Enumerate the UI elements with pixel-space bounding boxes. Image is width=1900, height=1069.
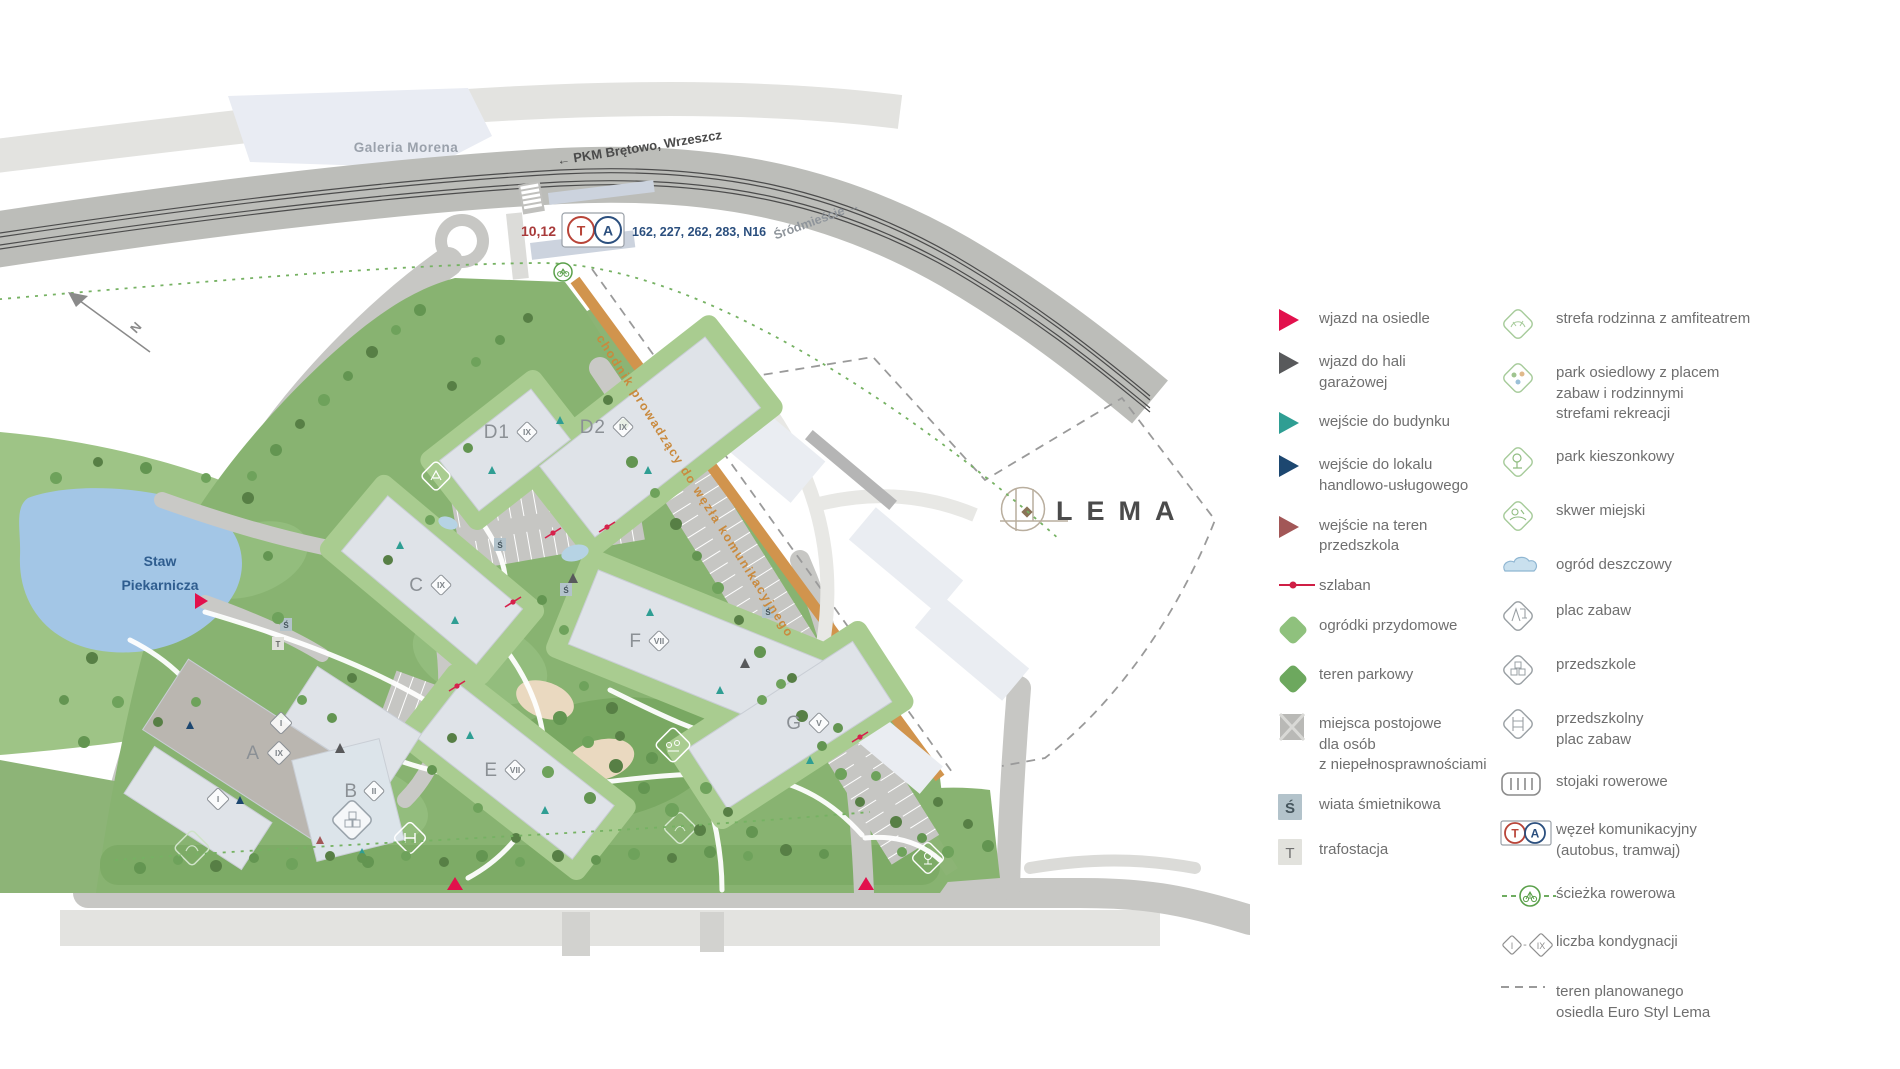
legend-label: ogród deszczowy <box>1556 552 1672 576</box>
legend-item: strefa rodzinna z amfiteatrem <box>1500 306 1840 341</box>
legend-label: strefa rodzinna z amfiteatrem <box>1556 306 1750 330</box>
city-square-icon <box>1500 498 1556 533</box>
floors-count-icon: I-IX <box>1500 929 1556 960</box>
legend-label: wejście do lokalu handlowo-usługowego <box>1319 452 1468 496</box>
svg-text:Ś: Ś <box>497 541 503 550</box>
bike-path-node-icon <box>554 263 572 281</box>
waste-shelter-icon: Ś <box>1277 792 1319 821</box>
legend-item: T trafostacja <box>1277 837 1507 866</box>
lema-logo: LEMA <box>1000 488 1189 532</box>
legend-item: wejście do lokalu handlowo-usługowego <box>1277 452 1507 496</box>
legend-item: wejście do budynku <box>1277 409 1507 436</box>
legend-label: stojaki rowerowe <box>1556 769 1668 793</box>
building-label-F: F <box>629 631 642 652</box>
legend-label: wejście na teren przedszkola <box>1319 513 1427 557</box>
bike-path-icon <box>1500 881 1556 910</box>
legend-item: park osiedlowy z placem zabaw i rodzinny… <box>1500 360 1840 425</box>
legend-label: węzeł komunikacyjny (autobus, tramwaj) <box>1556 817 1697 861</box>
legend-item: przedszkole <box>1500 652 1840 687</box>
legend-label: trafostacja <box>1319 837 1388 861</box>
legend-item: szlaban <box>1277 573 1507 597</box>
svg-text:-: - <box>1523 939 1527 951</box>
svg-text:Ś: Ś <box>563 586 569 595</box>
estate-park-icon <box>1500 360 1556 395</box>
kindergarten-playground-icon <box>1500 706 1556 741</box>
tram-lines-label: 10,12 <box>521 223 556 239</box>
site-plan-page: LEMA <box>0 0 1900 1069</box>
building-label-B: B <box>344 781 358 802</box>
building-label-D1: D1 <box>484 422 510 443</box>
building-label-E: E <box>484 760 498 781</box>
building-label-C: C <box>409 575 424 596</box>
svg-text:T: T <box>276 640 281 649</box>
building-label-D2: D2 <box>580 417 606 438</box>
playground-icon <box>1500 598 1556 633</box>
building-label-A: A <box>246 743 260 764</box>
barrier-icon <box>1277 573 1319 596</box>
legend-item: ścieżka rowerowa <box>1500 881 1840 910</box>
svg-text:I: I <box>280 718 282 728</box>
svg-text:IX: IX <box>619 422 627 432</box>
building-label-G: G <box>786 713 802 734</box>
svg-text:Ś: Ś <box>283 621 289 630</box>
legend-label: przedszkole <box>1556 652 1636 676</box>
svg-text:I: I <box>217 794 219 804</box>
bike-racks-icon <box>1500 769 1556 798</box>
legend-label: teren planowanego osiedla Euro Styl Lema <box>1556 979 1710 1023</box>
entry-garage-arrow-icon <box>1277 349 1319 376</box>
legend-label: miejsca postojowe dla osób z niepełnospr… <box>1319 711 1487 776</box>
transport-hub-icon: TA <box>1500 817 1556 848</box>
bus-lines-label: 162, 227, 262, 283, N16 <box>632 225 766 239</box>
legend-label: park kieszonkowy <box>1556 444 1674 468</box>
legend-label: wejście do budynku <box>1319 409 1450 433</box>
legend-label: ścieżka rowerowa <box>1556 881 1675 905</box>
legend-label: wiata śmietnikowa <box>1319 792 1441 816</box>
svg-text:Ś: Ś <box>1285 799 1295 817</box>
rain-garden-icon <box>1500 552 1556 579</box>
transformer-icon: T <box>1277 837 1319 866</box>
svg-text:V: V <box>816 718 822 728</box>
svg-text:T: T <box>1511 827 1519 841</box>
lema-logo-text: LEMA <box>1056 496 1189 526</box>
svg-text:Piekarnicza: Piekarnicza <box>121 577 198 593</box>
legend-label: plac zabaw <box>1556 598 1631 622</box>
legend-item: skwer miejski <box>1500 498 1840 533</box>
svg-text:A: A <box>1531 827 1540 841</box>
legend-column-1: wjazd na osiedle wjazd do hali garażowej… <box>1277 306 1507 882</box>
legend-label: skwer miejski <box>1556 498 1645 522</box>
legend-item: teren planowanego osiedla Euro Styl Lema <box>1500 979 1840 1023</box>
legend-label: ogródki przydomowe <box>1319 613 1457 637</box>
legend-item: park kieszonkowy <box>1500 444 1840 479</box>
legend-label: liczba kondygnacji <box>1556 929 1678 953</box>
entry-estate-arrow-icon <box>1277 306 1319 333</box>
building-entrance-arrow-icon <box>1277 409 1319 436</box>
legend-label: teren parkowy <box>1319 662 1413 686</box>
legend-item: wjazd na osiedle <box>1277 306 1507 333</box>
svg-text:A: A <box>603 223 613 239</box>
legend-column-2: strefa rodzinna z amfiteatrem park osied… <box>1500 306 1840 1042</box>
legend-item: plac zabaw <box>1500 598 1840 633</box>
north-arrow: N <box>68 292 150 352</box>
legend-label: przedszkolny plac zabaw <box>1556 706 1644 750</box>
svg-text:N: N <box>127 319 144 336</box>
svg-text:T: T <box>1285 845 1294 862</box>
retail-entrance-arrow-icon <box>1277 452 1319 479</box>
legend-item: miejsca postojowe dla osób z niepełnospr… <box>1277 711 1507 776</box>
svg-text:I: I <box>1511 941 1514 951</box>
legend-item: Ś wiata śmietnikowa <box>1277 792 1507 821</box>
svg-text:II: II <box>372 786 377 796</box>
svg-text:IX: IX <box>437 580 445 590</box>
legend-item: stojaki rowerowe <box>1500 769 1840 798</box>
galeria-morena-label: Galeria Morena <box>354 140 459 155</box>
legend-item: ogród deszczowy <box>1500 552 1840 579</box>
home-gardens-icon <box>1277 613 1319 646</box>
disabled-parking-icon <box>1277 711 1319 742</box>
site-plan-map: LEMA <box>0 0 1250 1069</box>
legend-label: wjazd do hali garażowej <box>1319 349 1406 393</box>
svg-text:IX: IX <box>1537 941 1546 951</box>
svg-text:T: T <box>577 223 586 239</box>
park-area-icon <box>1277 662 1319 695</box>
legend-item: TA węzeł komunikacyjny (autobus, tramwaj… <box>1500 817 1840 861</box>
legend-item: ogródki przydomowe <box>1277 613 1507 646</box>
svg-text:IX: IX <box>523 427 531 437</box>
legend-item: wejście na teren przedszkola <box>1277 513 1507 557</box>
planned-area-icon <box>1500 979 1556 994</box>
transformer-station: T <box>272 637 284 650</box>
svg-text:VII: VII <box>510 765 520 775</box>
legend-label: park osiedlowy z placem zabaw i rodzinny… <box>1556 360 1719 425</box>
legend-label: wjazd na osiedle <box>1319 306 1430 330</box>
pocket-park-icon <box>1500 444 1556 479</box>
kindergarten-icon <box>1500 652 1556 687</box>
kindergarten-entrance-arrow-icon <box>1277 513 1319 540</box>
svg-text:IX: IX <box>275 748 283 758</box>
legend-item: I-IX liczba kondygnacji <box>1500 929 1840 960</box>
svg-text:VII: VII <box>654 636 664 646</box>
svg-text:Staw: Staw <box>144 553 177 569</box>
legend-item: przedszkolny plac zabaw <box>1500 706 1840 750</box>
legend-label: szlaban <box>1319 573 1371 597</box>
legend-item: wjazd do hali garażowej <box>1277 349 1507 393</box>
family-zone-icon <box>1500 306 1556 341</box>
legend-item: teren parkowy <box>1277 662 1507 695</box>
